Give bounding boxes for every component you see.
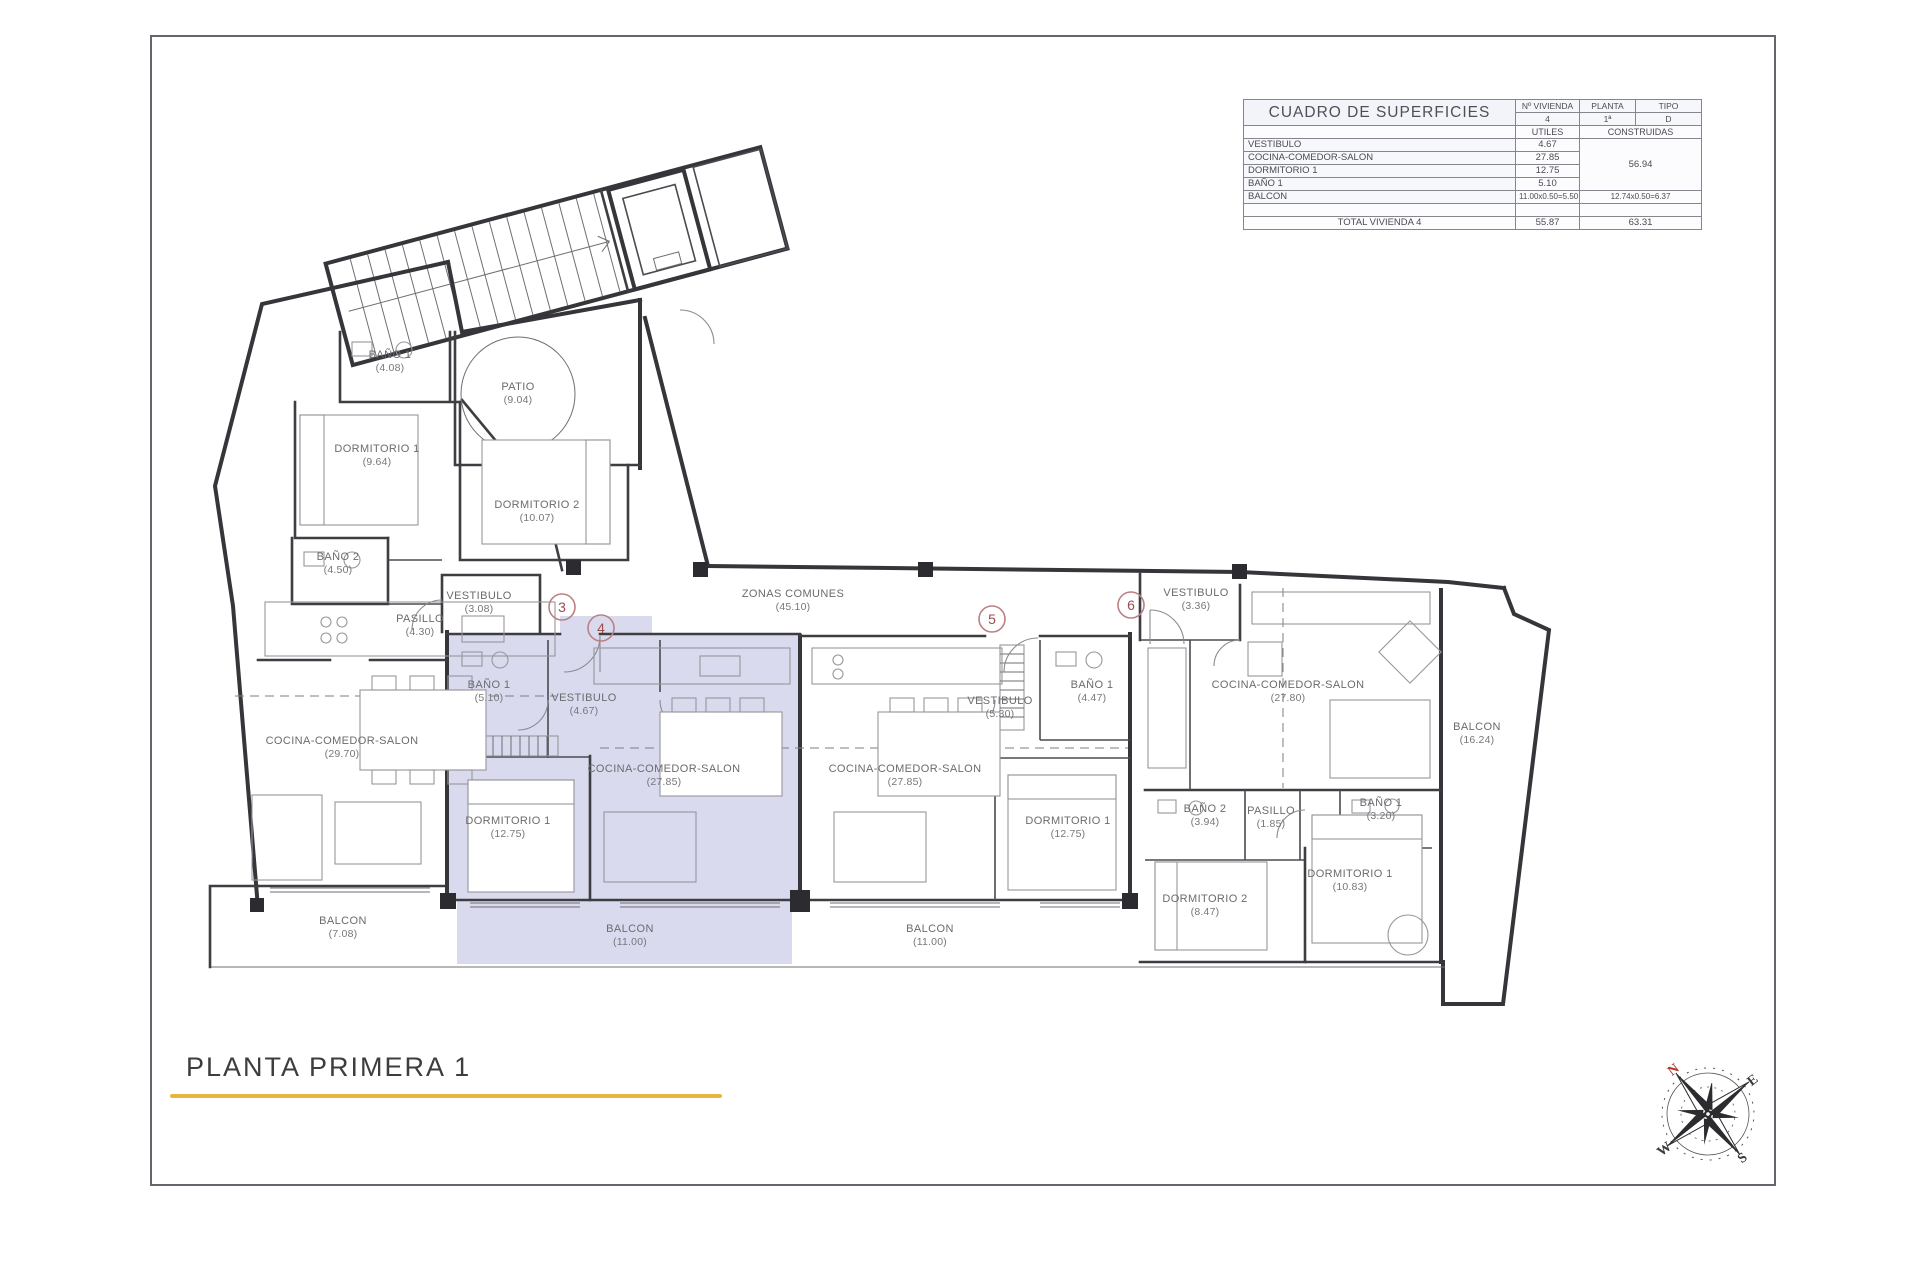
room-area: (4.50)	[324, 564, 353, 576]
room-label: DORMITORIO 1	[334, 443, 419, 455]
plan-sheet: BAÑO 1(4.08)PATIO(9.04)DORMITORIO 1(9.64…	[0, 0, 1920, 1280]
room-label: BAÑO 1	[468, 678, 511, 691]
room-label: DORMITORIO 1	[1025, 815, 1110, 827]
room-label: COCINA-COMEDOR-SALON	[588, 763, 741, 775]
room-area: (3.36)	[1182, 600, 1211, 612]
room-area: (8.47)	[1191, 906, 1220, 918]
row-bano: BAÑO 1	[1244, 178, 1516, 191]
room-area: (4.47)	[1078, 692, 1107, 704]
page-title: PLANTA PRIMERA 1	[186, 1052, 471, 1083]
room-area: (45.10)	[776, 601, 811, 613]
room-area: (5.30)	[986, 708, 1015, 720]
room-area: (12.75)	[1051, 828, 1086, 840]
room-area: (4.30)	[406, 626, 435, 638]
table-title: CUADRO DE SUPERFICIES	[1244, 100, 1516, 126]
row-vestibulo: VESTIBULO	[1244, 139, 1516, 152]
room-label: PASILLO	[1247, 805, 1295, 817]
total-utiles: 55.87	[1516, 217, 1580, 230]
room-area: (3.20)	[1367, 810, 1396, 822]
room-label: DORMITORIO 2	[494, 499, 579, 511]
col-header-tipo: TIPO	[1636, 100, 1702, 113]
unit-marker-number: 5	[988, 611, 996, 627]
room-area: (11.00)	[613, 936, 647, 948]
room-area: (11.00)	[913, 936, 947, 948]
unit-marker-number: 6	[1127, 597, 1135, 613]
room-label: BAÑO 1	[369, 348, 412, 361]
room-area: (3.08)	[465, 603, 494, 615]
room-label: DORMITORIO 1	[1307, 868, 1392, 880]
room-label: BAÑO 1	[1360, 796, 1403, 809]
construidas-merged: 56.94	[1580, 139, 1702, 191]
room-area: (27.85)	[888, 776, 923, 788]
room-area: (5.10)	[475, 692, 504, 704]
title-underline	[170, 1094, 722, 1098]
room-label: BALCON	[319, 915, 367, 927]
room-label: PASILLO	[396, 613, 444, 625]
room-label: DORMITORIO 1	[465, 815, 550, 827]
room-area: (16.24)	[1460, 734, 1495, 746]
furniture	[252, 342, 1441, 955]
room-area: (9.64)	[363, 456, 392, 468]
surfaces-table: CUADRO DE SUPERFICIES Nº VIVIENDA PLANTA…	[1243, 99, 1702, 230]
room-area: (9.04)	[504, 394, 533, 406]
room-area: (4.08)	[376, 362, 405, 374]
row-cocina: COCINA-COMEDOR-SALON	[1244, 152, 1516, 165]
compass-east: E	[1745, 1072, 1762, 1090]
room-label: BALCON	[1453, 721, 1501, 733]
room-label: PATIO	[501, 381, 534, 393]
total-construidas: 63.31	[1580, 217, 1702, 230]
staircase-block	[326, 147, 788, 365]
room-area: (27.80)	[1271, 692, 1306, 704]
row-dormitorio: DORMITORIO 1	[1244, 165, 1516, 178]
room-label: ZONAS COMUNES	[742, 588, 844, 600]
row-balcon: BALCON	[1244, 191, 1516, 204]
room-area: (10.07)	[520, 512, 555, 524]
compass-south: S	[1735, 1150, 1751, 1167]
room-label: VESTIBULO	[551, 692, 616, 704]
compass-north: N	[1665, 1061, 1682, 1079]
room-label: BAÑO 1	[1071, 678, 1114, 691]
room-label: COCINA-COMEDOR-SALON	[1212, 679, 1365, 691]
room-label: BALCON	[606, 923, 654, 935]
room-area: (1.85)	[1257, 818, 1286, 830]
subheader-utiles: UTILES	[1516, 126, 1580, 139]
room-area: (10.83)	[1333, 881, 1368, 893]
total-label: TOTAL VIVIENDA 4	[1244, 217, 1516, 230]
unit-marker-number: 3	[558, 599, 566, 615]
value-planta: 1ª	[1580, 113, 1636, 126]
room-label: COCINA-COMEDOR-SALON	[829, 763, 982, 775]
col-header-vivienda: Nº VIVIENDA	[1516, 100, 1580, 113]
value-tipo: D	[1636, 113, 1702, 126]
room-area: (7.08)	[329, 928, 358, 940]
room-label: BAÑO 2	[1184, 802, 1227, 815]
room-label: DORMITORIO 2	[1162, 893, 1247, 905]
compass-rose-icon: N E S W	[1644, 1050, 1772, 1178]
room-label: BALCON	[906, 923, 954, 935]
unit-marker-number: 4	[597, 620, 605, 636]
subheader-construidas: CONSTRUIDAS	[1580, 126, 1702, 139]
room-area: (12.75)	[491, 828, 526, 840]
room-label: VESTIBULO	[967, 695, 1032, 707]
room-area: (4.67)	[570, 705, 599, 717]
room-label: VESTIBULO	[446, 590, 511, 602]
room-area: (29.70)	[325, 748, 360, 760]
room-area: (27.85)	[647, 776, 682, 788]
value-vivienda: 4	[1516, 113, 1580, 126]
col-header-planta: PLANTA	[1580, 100, 1636, 113]
room-area: (3.94)	[1191, 816, 1220, 828]
room-label: VESTIBULO	[1163, 587, 1228, 599]
room-label: COCINA-COMEDOR-SALON	[266, 735, 419, 747]
room-label: BAÑO 2	[317, 550, 360, 563]
